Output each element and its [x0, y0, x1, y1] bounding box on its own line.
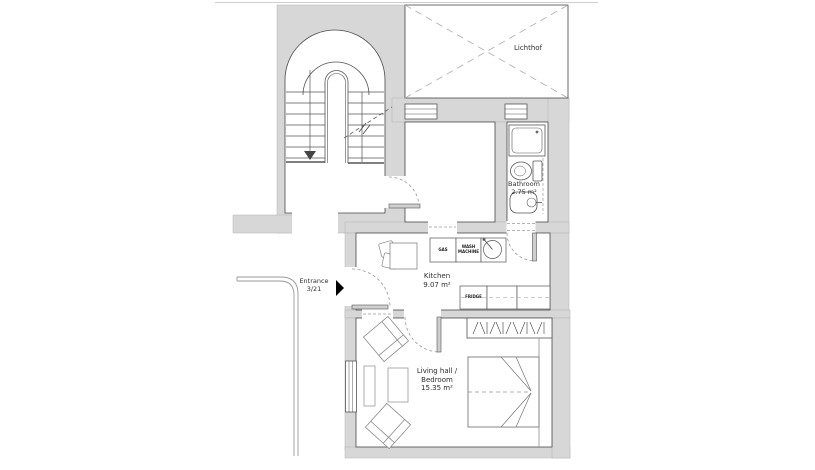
- window-bathroom-lichthof: [505, 104, 527, 119]
- corridor-outline: [237, 277, 298, 456]
- coffee-table: [388, 368, 408, 402]
- bed: [468, 357, 539, 427]
- window-hall-lichthof: [405, 104, 437, 119]
- door-leaf-bathroom: [533, 233, 537, 261]
- toilet-icon: [511, 161, 543, 181]
- washer-label: WASH MACHINE: [456, 245, 481, 254]
- bathroom-label: Bathroom 2.75 m²: [496, 180, 552, 196]
- dining-table-set: [378, 240, 417, 269]
- entrance-label: Entrance 3/21: [294, 277, 334, 293]
- kitchen-label: Kitchen 9.07 m²: [410, 272, 464, 289]
- entrance-arrow-icon: [336, 280, 344, 296]
- door-leaf-entrance: [352, 305, 388, 309]
- floor-plan-drawing: [0, 0, 815, 470]
- fridge-label: FRIDGE: [460, 295, 487, 300]
- living-room-label: Living hall / Bedroom 15.35 m²: [408, 367, 466, 393]
- wardrobe: [467, 318, 552, 338]
- shower-icon: [509, 125, 545, 156]
- dining-table: [390, 243, 417, 269]
- window-living-room: [346, 361, 357, 412]
- lichthof-label: Lichthof: [503, 44, 553, 53]
- door-leaf-hall: [389, 204, 420, 208]
- stove-label: GAS: [430, 248, 456, 253]
- sideboard: [364, 366, 375, 406]
- floor-plan: Lichthof Bathroom 2.75 m² Kitchen 9.07 m…: [0, 0, 815, 470]
- door-leaf-living: [437, 317, 441, 352]
